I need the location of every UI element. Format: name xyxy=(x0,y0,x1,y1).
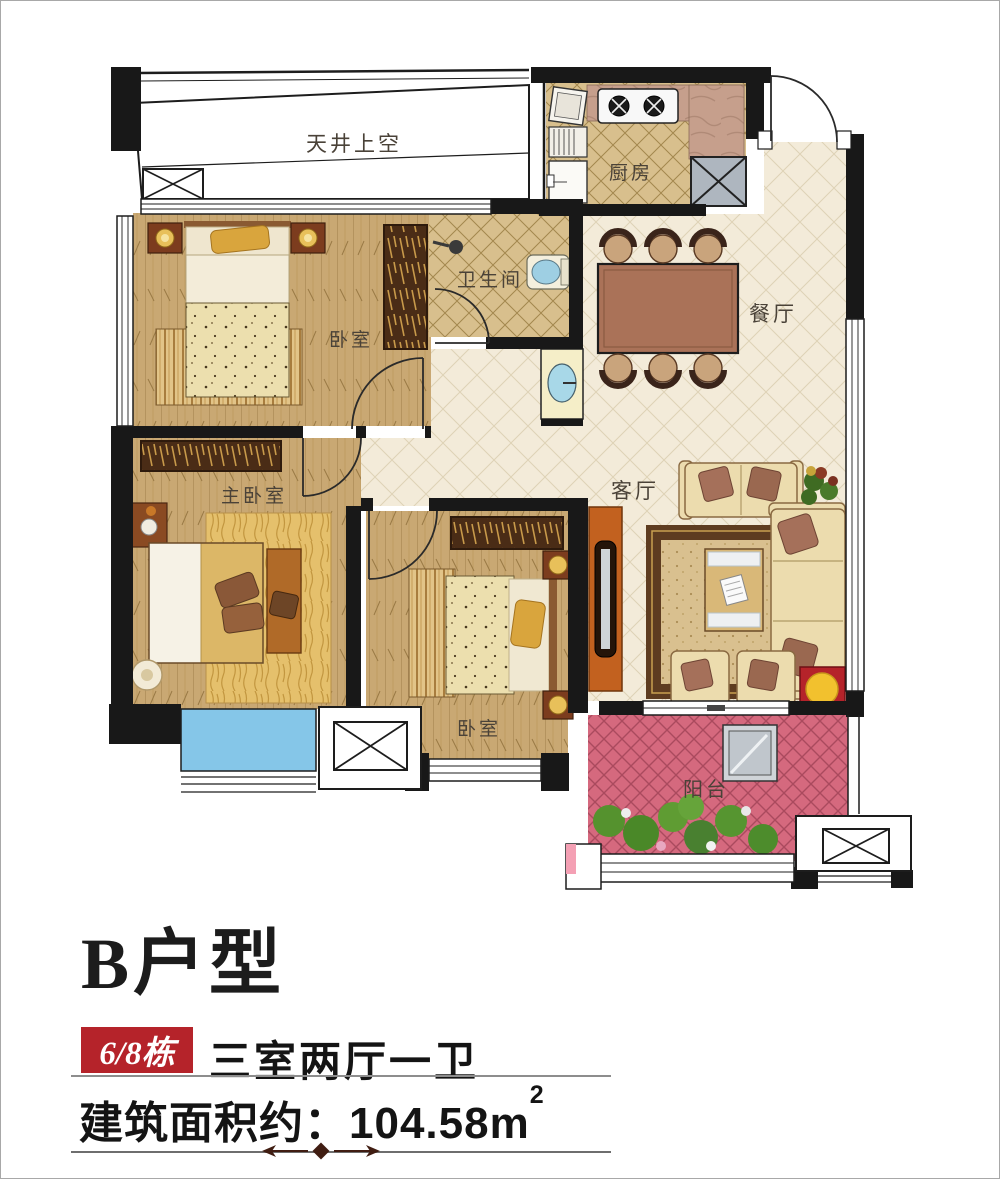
window-living-right xyxy=(846,319,864,691)
floor-plan-page: 天井上空 厨房 xyxy=(0,0,1000,1179)
ac-platform-left-icon xyxy=(319,707,421,789)
sliding-door-balcony xyxy=(643,701,789,715)
dining-table xyxy=(598,264,738,353)
wardrobe xyxy=(141,441,281,471)
bench xyxy=(267,549,301,653)
bed xyxy=(149,543,265,663)
entry-door-arc xyxy=(771,76,837,142)
wardrobe xyxy=(384,225,427,349)
wash-basin xyxy=(541,349,583,419)
master-bedroom-label: 主卧室 xyxy=(221,485,287,507)
area-exponent: 2 xyxy=(530,1081,545,1109)
kitchen-label: 厨房 xyxy=(609,162,653,184)
stove xyxy=(598,89,678,123)
coffee-table xyxy=(705,549,763,631)
floor-plan-svg: 天井上空 厨房 xyxy=(1,1,1000,913)
armchair-right xyxy=(737,651,795,705)
bay-window-master xyxy=(181,709,316,792)
microwave xyxy=(549,127,587,157)
stool xyxy=(132,660,162,690)
light-well-label: 天井上空 xyxy=(306,133,402,156)
dining-label: 餐厅 xyxy=(749,303,797,326)
nightstand-left xyxy=(148,223,182,253)
fridge xyxy=(547,161,587,203)
shaft-icon xyxy=(143,169,203,199)
unit-title: B户型 xyxy=(81,925,285,1004)
armchair-left xyxy=(671,651,729,705)
divider-line-top xyxy=(71,1075,611,1077)
toilet xyxy=(527,255,569,289)
light-well: 天井上空 xyxy=(134,70,529,199)
window-top-band xyxy=(141,199,491,214)
washing-machine xyxy=(723,725,777,781)
area-unit: m xyxy=(490,1099,530,1148)
bedroom-bottom-label: 卧室 xyxy=(457,718,501,740)
balcony-label: 阳台 xyxy=(683,778,729,801)
bedroom-top-label: 卧室 xyxy=(329,329,373,351)
living-label: 客厅 xyxy=(611,480,659,503)
window-left xyxy=(117,216,133,426)
wardrobe xyxy=(451,517,563,549)
tv-cabinet xyxy=(589,507,622,691)
bed xyxy=(184,221,291,397)
kitchen-counter-side xyxy=(689,85,744,159)
vanity xyxy=(131,503,167,547)
sink xyxy=(549,87,587,125)
layout-spec: 三室两厅一卫 xyxy=(209,1028,479,1089)
bed xyxy=(446,576,557,694)
bathroom-label: 卫生间 xyxy=(457,269,523,291)
nightstand-right xyxy=(291,223,325,253)
duct-icon xyxy=(691,157,746,206)
dimension-arrows-icon xyxy=(256,1141,386,1161)
window-bedroom-bottom xyxy=(429,759,541,781)
building-badge: 6/8栋 xyxy=(81,1027,193,1073)
